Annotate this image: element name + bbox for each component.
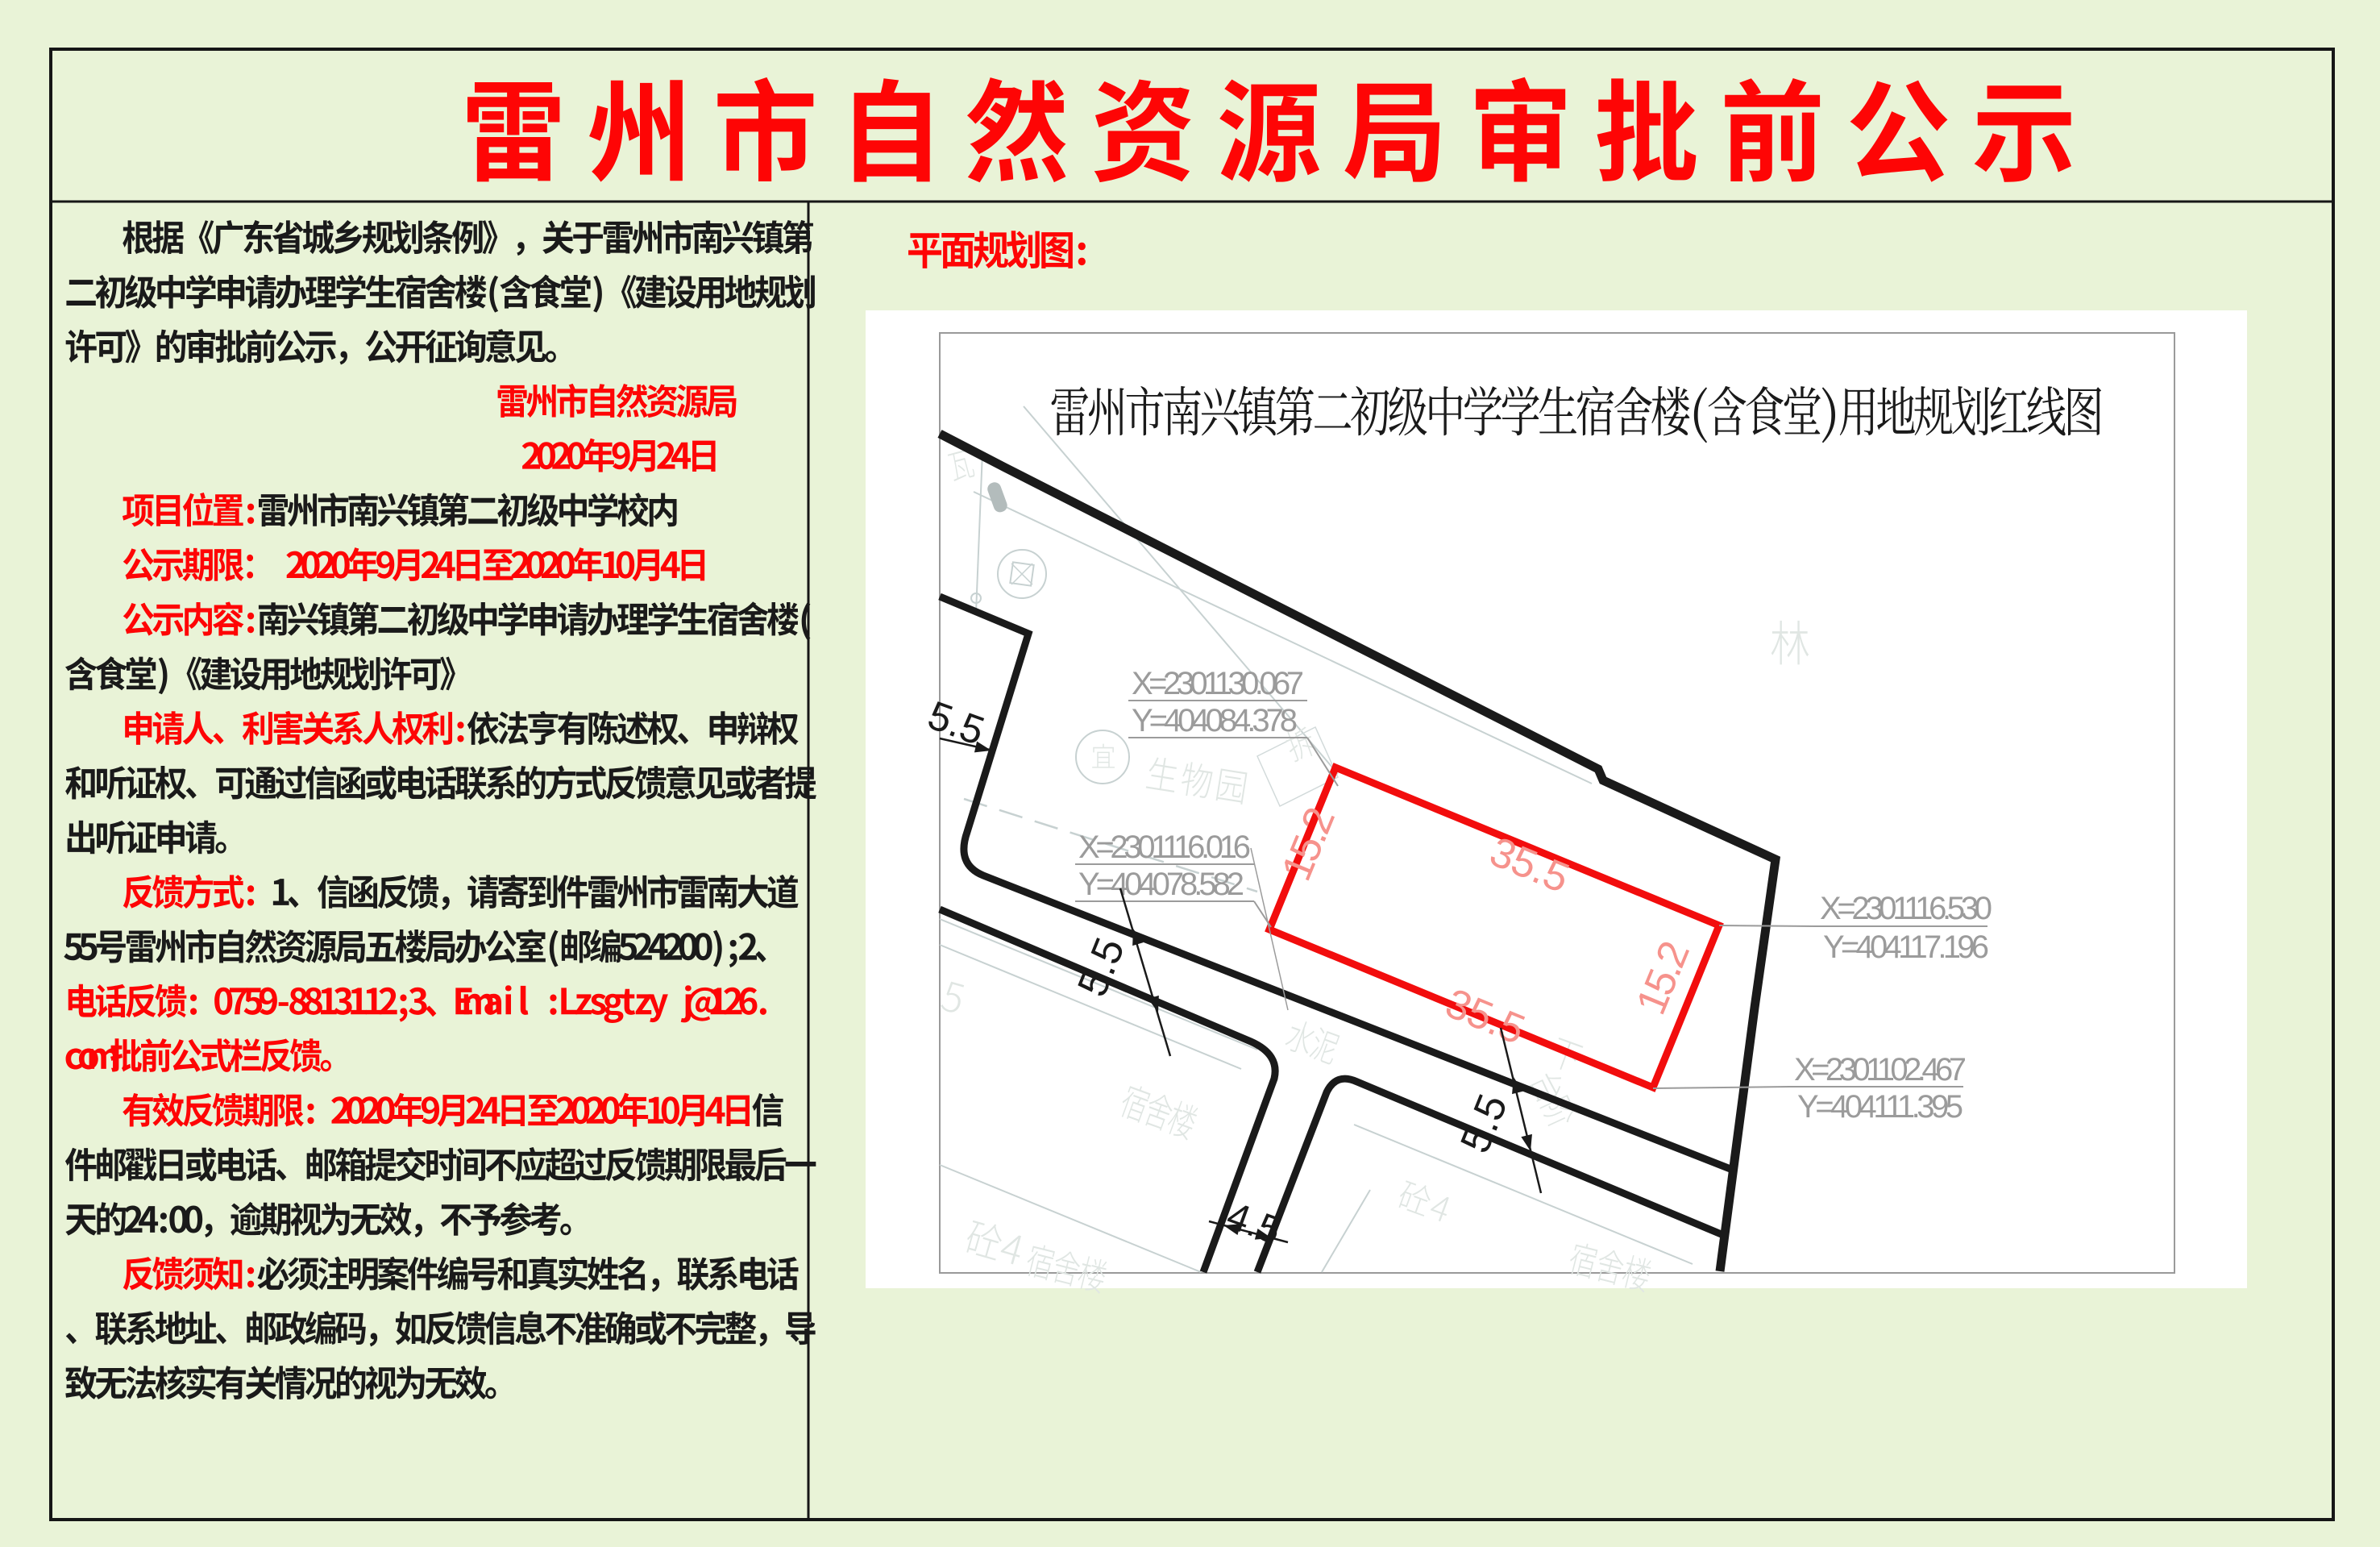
svg-text:Y=404084.378: Y=404084.378	[1132, 703, 1298, 738]
svg-text:Y=404117.196: Y=404117.196	[1823, 929, 1989, 965]
svg-text:X=2301102.467: X=2301102.467	[1794, 1052, 1967, 1087]
svg-text:X=2301116.530: X=2301116.530	[1820, 891, 1992, 926]
svg-text:X=2301130.067: X=2301130.067	[1132, 666, 1304, 701]
svg-text:Y=404111.395: Y=404111.395	[1797, 1089, 1963, 1125]
svg-text:X=2301116.016: X=2301116.016	[1078, 830, 1251, 865]
svg-text:Y=404078.582: Y=404078.582	[1078, 867, 1244, 902]
